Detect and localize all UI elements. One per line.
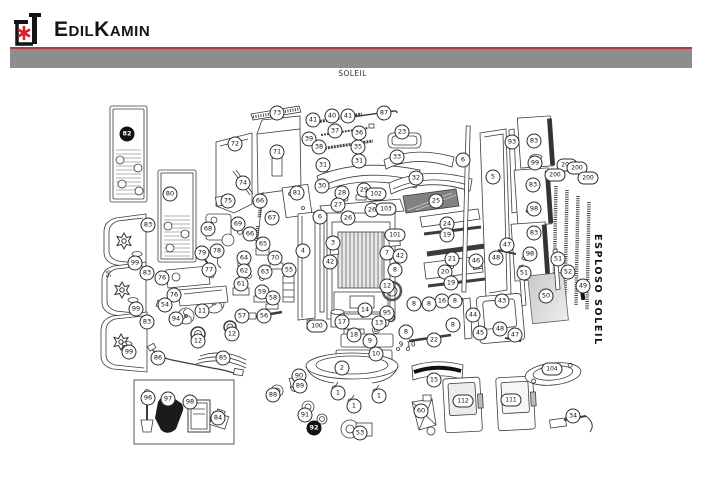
callout-75: 75 bbox=[221, 194, 236, 209]
callout-22: 22 bbox=[427, 333, 442, 348]
callout-8: 8 bbox=[448, 294, 463, 309]
callout-85: 85 bbox=[216, 351, 231, 366]
callout-42: 42 bbox=[393, 249, 408, 264]
callout-8: 8 bbox=[388, 263, 403, 278]
callout-57: 57 bbox=[235, 309, 250, 324]
callout-87: 87 bbox=[377, 106, 392, 121]
callout-44: 44 bbox=[466, 308, 481, 323]
callout-41: 41 bbox=[306, 113, 321, 128]
callout-18: 18 bbox=[347, 328, 362, 343]
callout-97: 97 bbox=[161, 392, 176, 407]
callout-51: 51 bbox=[551, 252, 566, 267]
callout-15: 15 bbox=[427, 373, 442, 388]
callout-56: 56 bbox=[257, 309, 272, 324]
callout-58: 58 bbox=[266, 291, 281, 306]
callout-60: 60 bbox=[414, 404, 429, 419]
edilkamin-logo-icon bbox=[12, 12, 50, 46]
callout-47: 47 bbox=[508, 328, 523, 343]
callout-83: 83 bbox=[527, 226, 542, 241]
callout-67: 67 bbox=[265, 211, 280, 226]
callout-35: 35 bbox=[351, 140, 366, 155]
callout-13: 13 bbox=[372, 316, 387, 331]
header-gray-bar bbox=[10, 49, 692, 68]
callout-52: 52 bbox=[561, 265, 576, 280]
callout-98: 98 bbox=[183, 395, 198, 410]
callout-200: 200 bbox=[545, 169, 566, 182]
callout-6: 6 bbox=[456, 153, 471, 168]
callout-54: 54 bbox=[158, 298, 173, 313]
callout-6: 6 bbox=[313, 210, 328, 225]
callout-83: 83 bbox=[140, 315, 155, 330]
callout-9: 9 bbox=[399, 342, 403, 349]
callout-80: 80 bbox=[163, 187, 178, 202]
callout-4: 4 bbox=[296, 244, 311, 259]
callout-92: 92 bbox=[307, 421, 322, 436]
callout-61: 61 bbox=[234, 277, 249, 292]
callout-89: 89 bbox=[293, 379, 308, 394]
callout-8: 8 bbox=[407, 297, 422, 312]
callout-1: 1 bbox=[372, 389, 387, 404]
callout-12: 12 bbox=[191, 334, 206, 349]
callout-1: 1 bbox=[347, 399, 362, 414]
callout-76: 76 bbox=[155, 271, 170, 286]
callout-42: 42 bbox=[323, 255, 338, 270]
callout-66: 66 bbox=[253, 194, 268, 209]
callout-82: 82 bbox=[120, 127, 135, 142]
callout-33: 33 bbox=[390, 150, 405, 165]
model-title: SOLEIL bbox=[0, 69, 705, 78]
callout-81: 81 bbox=[290, 186, 305, 201]
callout-32: 32 bbox=[409, 171, 424, 186]
callout-104: 104 bbox=[542, 363, 563, 376]
callout-51: 51 bbox=[517, 266, 532, 281]
callout-14: 14 bbox=[358, 303, 373, 318]
callout-43: 43 bbox=[495, 294, 510, 309]
callout-63: 63 bbox=[258, 265, 273, 280]
callout-74: 74 bbox=[236, 176, 251, 191]
callout-38: 38 bbox=[312, 140, 327, 155]
callout-200: 200 bbox=[578, 172, 599, 185]
callout-84: 84 bbox=[211, 411, 226, 426]
callout-19: 19 bbox=[444, 276, 459, 291]
callout-17: 17 bbox=[335, 315, 350, 330]
callout-100: 100 bbox=[307, 320, 328, 333]
callout-83: 83 bbox=[140, 266, 155, 281]
callout-36: 36 bbox=[352, 126, 367, 141]
callout-12: 12 bbox=[380, 279, 395, 294]
callout-99: 99 bbox=[528, 156, 543, 171]
callout-103: 103 bbox=[376, 203, 397, 216]
callout-94: 94 bbox=[169, 312, 184, 327]
callout-8: 8 bbox=[399, 325, 414, 340]
callout-8: 8 bbox=[446, 318, 461, 333]
callout-111: 111 bbox=[501, 394, 522, 407]
callout-70: 70 bbox=[268, 251, 283, 266]
callout-65: 65 bbox=[256, 237, 271, 252]
callout-3: 3 bbox=[326, 236, 341, 251]
callout-93: 93 bbox=[505, 135, 520, 150]
callout-98: 98 bbox=[527, 202, 542, 217]
callout-40: 40 bbox=[325, 109, 340, 124]
callout-48: 48 bbox=[489, 251, 504, 266]
callout-34: 34 bbox=[566, 409, 581, 424]
callout-26: 26 bbox=[341, 211, 356, 226]
callout-83: 83 bbox=[526, 178, 541, 193]
callout-19: 19 bbox=[440, 228, 455, 243]
callout-73: 73 bbox=[270, 106, 285, 121]
callout-79: 79 bbox=[195, 246, 210, 261]
callout-53: 53 bbox=[353, 426, 368, 441]
callout-49: 49 bbox=[576, 279, 591, 294]
callout-68: 68 bbox=[201, 222, 216, 237]
callout-48: 48 bbox=[493, 322, 508, 337]
callout-47: 47 bbox=[500, 238, 515, 253]
callout-31: 31 bbox=[316, 158, 331, 173]
logo-red-asterisk bbox=[19, 27, 29, 39]
callout-102: 102 bbox=[366, 188, 387, 201]
callout-72: 72 bbox=[228, 137, 243, 152]
callout-66: 66 bbox=[243, 227, 258, 242]
callout-45: 45 bbox=[473, 326, 488, 341]
exploded-view-page: EdilKamin SOLEIL ESPLOSO SOLEIL bbox=[0, 0, 705, 498]
callout-11: 11 bbox=[195, 304, 210, 319]
callout-95: 95 bbox=[104, 270, 110, 278]
callout-8: 8 bbox=[422, 297, 437, 312]
callout-10: 10 bbox=[407, 342, 416, 349]
callout-1: 1 bbox=[331, 386, 346, 401]
callout-99: 99 bbox=[129, 302, 144, 317]
callout-30: 30 bbox=[315, 179, 330, 194]
callout-71: 71 bbox=[270, 145, 285, 160]
callout-112: 112 bbox=[453, 395, 474, 408]
callout-23: 23 bbox=[395, 125, 410, 140]
callout-25: 25 bbox=[429, 194, 444, 209]
callout-86: 86 bbox=[151, 351, 166, 366]
callout-5: 5 bbox=[486, 170, 501, 185]
callout-55: 55 bbox=[282, 263, 297, 278]
callout-31: 31 bbox=[352, 154, 367, 169]
callout-83: 83 bbox=[141, 218, 156, 233]
callout-88: 88 bbox=[266, 388, 281, 403]
callout-27: 27 bbox=[331, 198, 346, 213]
callout-41: 41 bbox=[341, 109, 356, 124]
callout-50: 50 bbox=[539, 289, 554, 304]
callout-12: 12 bbox=[225, 327, 240, 342]
callout-77: 77 bbox=[202, 263, 217, 278]
callout-2: 2 bbox=[335, 361, 350, 376]
callout-37: 37 bbox=[328, 124, 343, 139]
callout-98: 98 bbox=[523, 247, 538, 262]
brand-wordmark: EdilKamin bbox=[54, 18, 150, 42]
callout-46: 46 bbox=[469, 254, 484, 269]
callout-96: 96 bbox=[141, 391, 156, 406]
callout-99: 99 bbox=[122, 345, 137, 360]
callout-78: 78 bbox=[210, 244, 225, 259]
side-vertical-label: ESPLOSO SOLEIL bbox=[592, 234, 603, 346]
callout-101: 101 bbox=[385, 229, 406, 242]
callout-10: 10 bbox=[369, 347, 384, 362]
callout-83: 83 bbox=[527, 134, 542, 149]
